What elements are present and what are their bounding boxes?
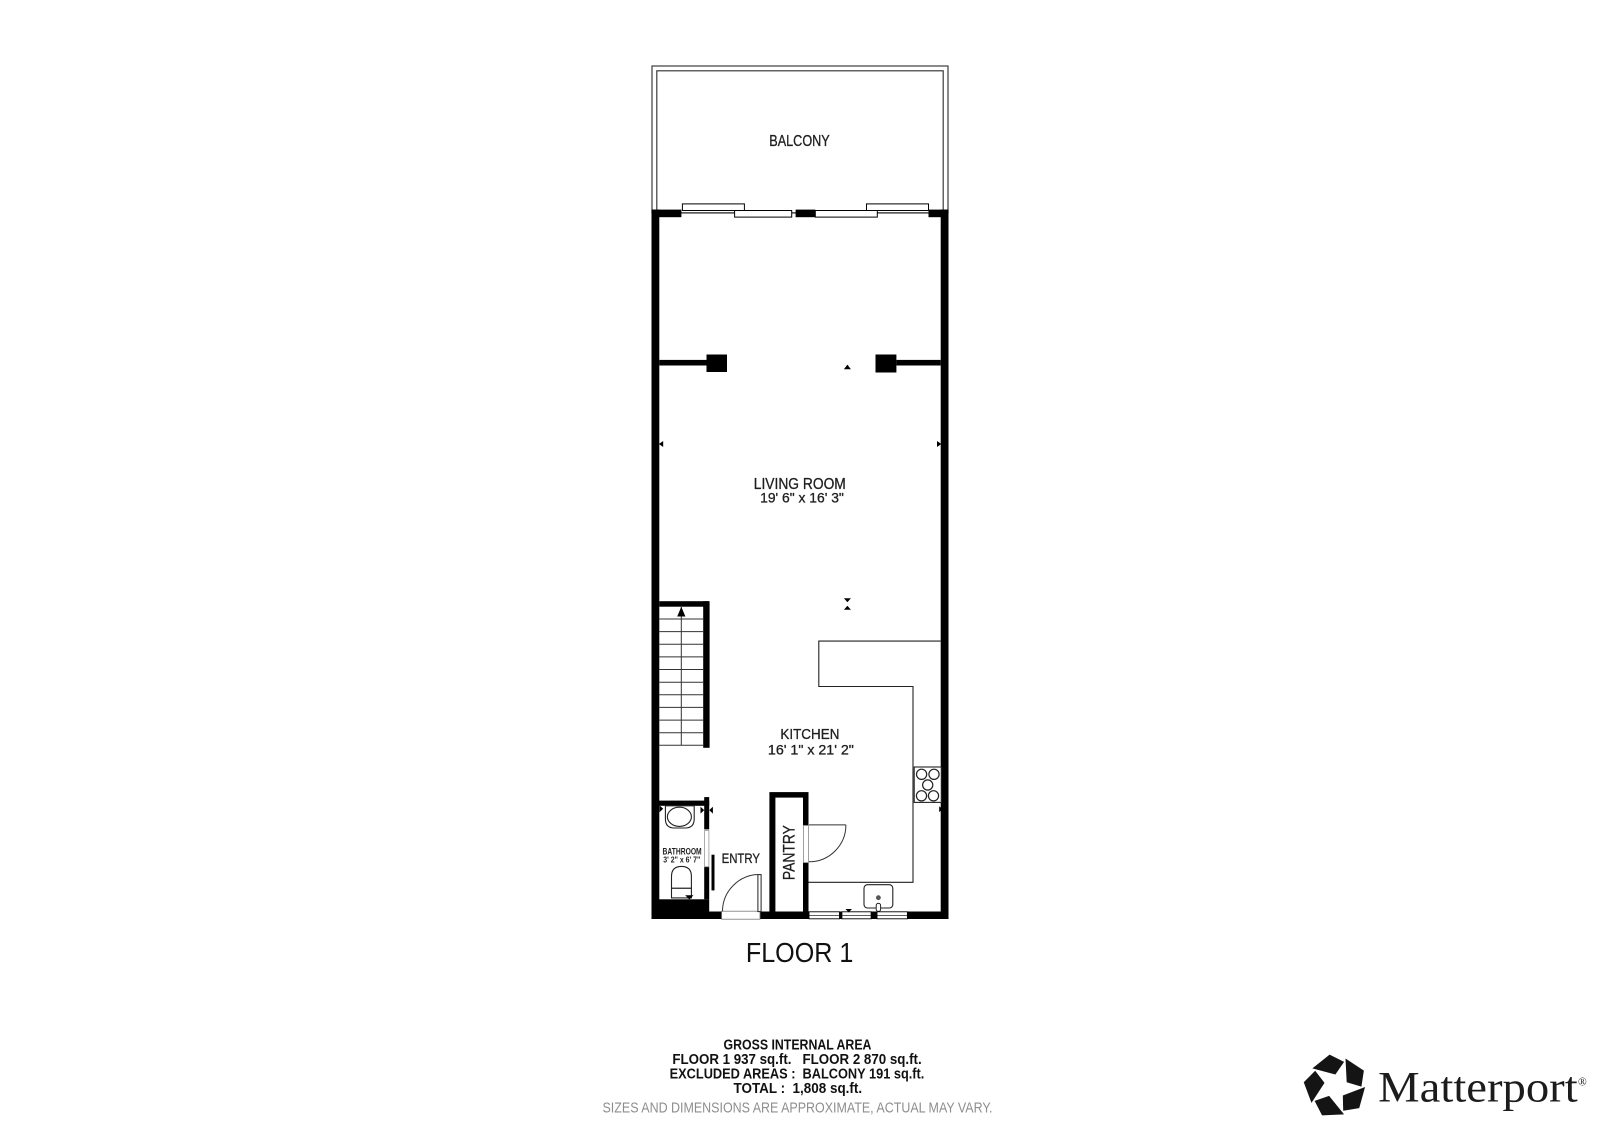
svg-text:19' 6" x 16' 3": 19' 6" x 16' 3"	[760, 491, 844, 506]
svg-text:16' 1" x 21' 2": 16' 1" x 21' 2"	[768, 743, 854, 758]
svg-text:FLOOR 1: FLOOR 1	[746, 937, 854, 968]
svg-text:TOTAL : 1,808 sq.ft.: TOTAL : 1,808 sq.ft.	[734, 1080, 863, 1097]
svg-text:PANTRY: PANTRY	[780, 825, 799, 880]
svg-text:SIZES AND DIMENSIONS ARE APPRO: SIZES AND DIMENSIONS ARE APPROXIMATE, AC…	[603, 1099, 993, 1116]
svg-text:®: ®	[1578, 1077, 1587, 1089]
svg-text:KITCHEN: KITCHEN	[780, 726, 839, 743]
svg-text:ENTRY: ENTRY	[722, 850, 761, 866]
svg-text:BALCONY: BALCONY	[769, 133, 830, 150]
svg-text:3' 2" x 6' 7": 3' 2" x 6' 7"	[663, 855, 700, 865]
svg-text:Matterport: Matterport	[1378, 1065, 1578, 1112]
